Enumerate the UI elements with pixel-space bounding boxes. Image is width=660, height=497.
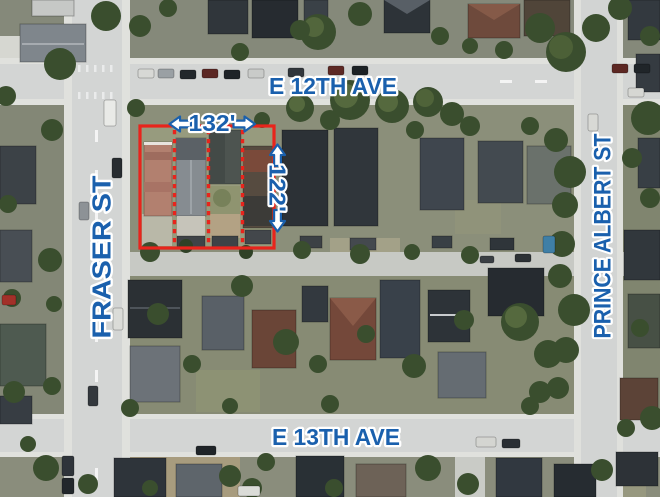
- satellite-imagery: 132' 122' E 12TH AVE E 13TH AVE FRASER S…: [0, 0, 660, 497]
- street-label-fraser: FRASER ST: [87, 175, 117, 338]
- street-label-e12th: E 12TH AVE: [269, 73, 397, 99]
- street-label-prince-albert: PRINCE ALBERT ST: [590, 133, 617, 338]
- street-label-e13th: E 13TH AVE: [272, 424, 400, 450]
- depth-dimension-label: 122': [265, 164, 291, 212]
- frontage-dimension-label: 132': [189, 110, 236, 136]
- map-canvas: 132' 122' E 12TH AVE E 13TH AVE FRASER S…: [0, 0, 660, 497]
